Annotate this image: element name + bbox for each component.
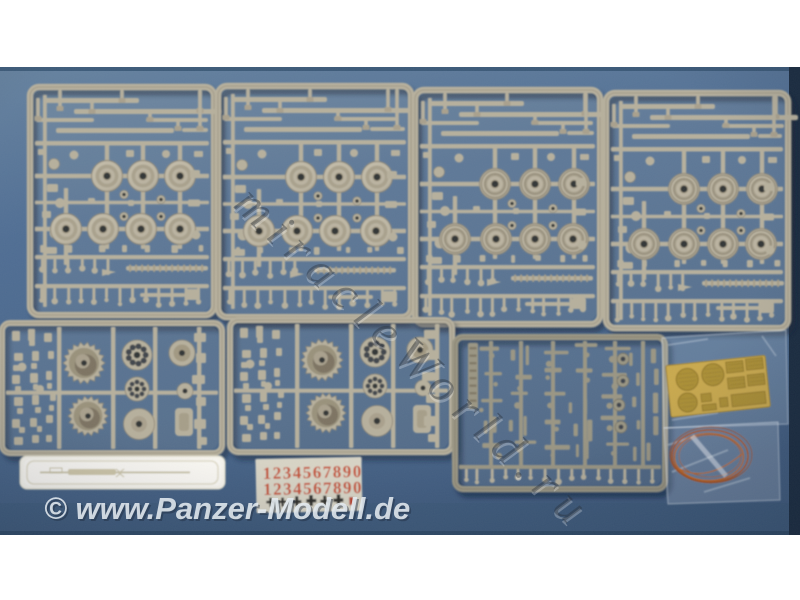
svg-text:© www.Panzer-Modell.de: © www.Panzer-Modell.de [44, 491, 410, 526]
